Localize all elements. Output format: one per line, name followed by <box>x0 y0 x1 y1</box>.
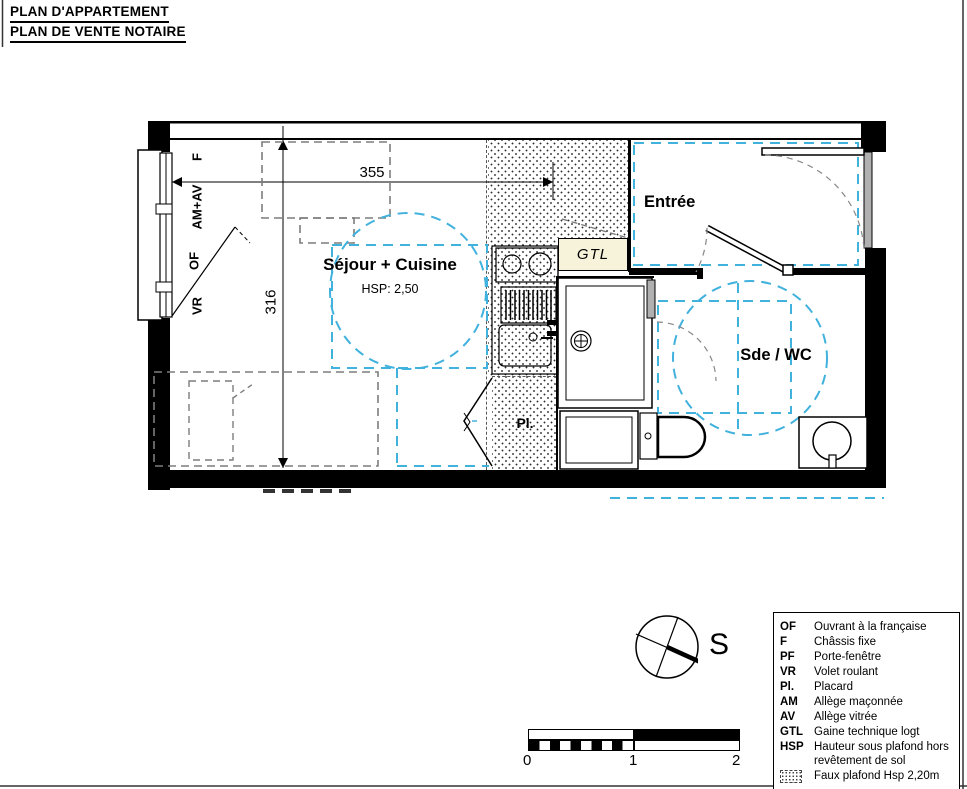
compass-needle-south-thick <box>667 645 698 664</box>
wall-right-lower <box>865 248 886 488</box>
room-label-sde-wc: Sde / WC <box>716 346 836 365</box>
sde-door-hinge <box>783 265 793 275</box>
window-transom-upper <box>156 204 172 214</box>
legend-row-am: AM Allège maçonnée <box>780 695 954 709</box>
wall-entree-bottom-left <box>629 268 700 275</box>
window-sill <box>138 150 162 320</box>
wall-corner-top-left <box>148 121 170 152</box>
floor-plan-page: PLAN D'APPARTEMENT PLAN DE VENTE NOTAIRE <box>0 0 967 789</box>
room-hsp-sejour: HSP: 2,50 <box>280 282 500 296</box>
window-label-am-av: AM+AV <box>190 185 205 230</box>
wall-entree-bottom-right <box>790 268 866 275</box>
legend-row-pf: PF Porte-fenêtre <box>780 650 954 664</box>
scale-bar-segment <box>634 740 740 751</box>
room-label-entree: Entrée <box>644 193 695 212</box>
compass-south-label: S <box>709 628 729 662</box>
legend-key: AV <box>780 710 814 724</box>
entry-door-frame <box>864 152 872 248</box>
placard-folding-door <box>464 378 492 466</box>
compass-needle-ns <box>656 617 678 677</box>
faux-plafond-hatch-icon <box>780 770 802 783</box>
door-stop-notch <box>697 268 703 279</box>
legend-swatch-cell <box>780 769 814 787</box>
room-label-placard: Pl. <box>505 415 545 431</box>
legend-label: Hauteur sous plafond hors revêtement de … <box>814 740 954 768</box>
shower-door-panel <box>647 280 655 318</box>
kitchen-cooktop <box>496 248 558 282</box>
appliance-box-outer <box>560 411 638 469</box>
dim-316-label: 316 <box>263 289 280 314</box>
shower-door-swing-arc <box>657 322 716 381</box>
kitchen-counter-outline <box>492 246 558 374</box>
legend-row-hsp: HSP Hauteur sous plafond hors revêtement… <box>780 740 954 768</box>
kitchen-faucet-b <box>547 331 556 336</box>
scale-bar-segment <box>528 729 634 740</box>
legend-label: Faux plafond Hsp 2,20m <box>814 769 954 787</box>
wall-top-inner <box>170 138 862 140</box>
ceiling-slope-dashed-line <box>562 219 628 238</box>
scale-bar-segment <box>634 729 740 740</box>
kitchen-burner-right <box>529 253 551 275</box>
legend-label: Châssis fixe <box>814 635 954 649</box>
washbasin-tap <box>829 455 836 468</box>
scale-tick-0: 0 <box>523 752 531 769</box>
window-transom-lower <box>156 282 172 292</box>
legend-key: VR <box>780 665 814 679</box>
wall-entree-left <box>628 139 631 272</box>
legend-row-faux-plafond: Faux plafond Hsp 2,20m <box>780 769 954 787</box>
room-label-sejour-cuisine: Séjour + Cuisine <box>280 255 500 275</box>
kitchen-sink <box>499 325 551 366</box>
legend-label: Ouvrant à la française <box>814 620 954 634</box>
gtl-label: GTL <box>577 246 609 263</box>
gtl-box: GTL <box>558 238 628 271</box>
legend-row-vr: VR Volet roulant <box>780 665 954 679</box>
legend-key: PF <box>780 650 814 664</box>
window-casement-swing-dashed <box>235 227 250 243</box>
legend-label: Volet roulant <box>814 665 954 679</box>
scale-tick-1: 1 <box>629 752 637 769</box>
wall-bottom <box>148 470 886 488</box>
legend-label: Allège vitrée <box>814 710 954 724</box>
dim-355-arrow-left <box>172 177 182 187</box>
window-label-f: F <box>190 153 205 161</box>
legend-key: GTL <box>780 725 814 739</box>
legend-key: OF <box>780 620 814 634</box>
legend-label: Gaine technique logt <box>814 725 954 739</box>
legend-label: Porte-fenêtre <box>814 650 954 664</box>
legend-key: F <box>780 635 814 649</box>
legend-row-of: OF Ouvrant à la française <box>780 620 954 634</box>
kitchen-faucet-a <box>547 320 556 325</box>
dim-355-label: 355 <box>347 164 397 181</box>
legend-box: OF Ouvrant à la française F Châssis fixe… <box>773 612 960 789</box>
entry-door-leaf <box>762 148 864 155</box>
kitchen-sink-drain <box>529 333 537 341</box>
wall-top-outer <box>148 121 886 124</box>
legend-row-av: AV Allège vitrée <box>780 710 954 724</box>
legend-row-pl: Pl. Placard <box>780 680 954 694</box>
legend-key: AM <box>780 695 814 709</box>
window-label-of: OF <box>187 252 202 270</box>
kitchen-burner-left <box>503 255 521 273</box>
shower-tray-outer <box>558 278 652 408</box>
kitchen-drainer-ribs <box>506 290 551 320</box>
window-label-vr: VR <box>190 297 205 315</box>
legend-row-gtl: GTL Gaine technique logt <box>780 725 954 739</box>
legend-label: Allège maçonnée <box>814 695 954 709</box>
furniture-small-outline <box>300 218 354 243</box>
legend-key: Pl. <box>780 680 814 694</box>
entry-door-swing-arc <box>765 155 864 250</box>
scale-tick-2: 2 <box>732 752 740 769</box>
wall-left-lower <box>148 318 170 490</box>
legend-key: HSP <box>780 740 814 768</box>
legend-row-f: F Châssis fixe <box>780 635 954 649</box>
scale-bar-segment-checkered <box>528 740 634 751</box>
furniture-bed-outline <box>154 372 378 466</box>
legend-label: Placard <box>814 680 954 694</box>
dim-355-arrow-right <box>543 177 553 187</box>
furniture-bed-fold-mark <box>233 384 253 398</box>
toilet-tank <box>640 413 657 459</box>
toilet-bowl <box>658 417 705 457</box>
scale-bar: 0 1 2 <box>528 729 740 751</box>
furniture-bed-pillow <box>189 381 233 460</box>
